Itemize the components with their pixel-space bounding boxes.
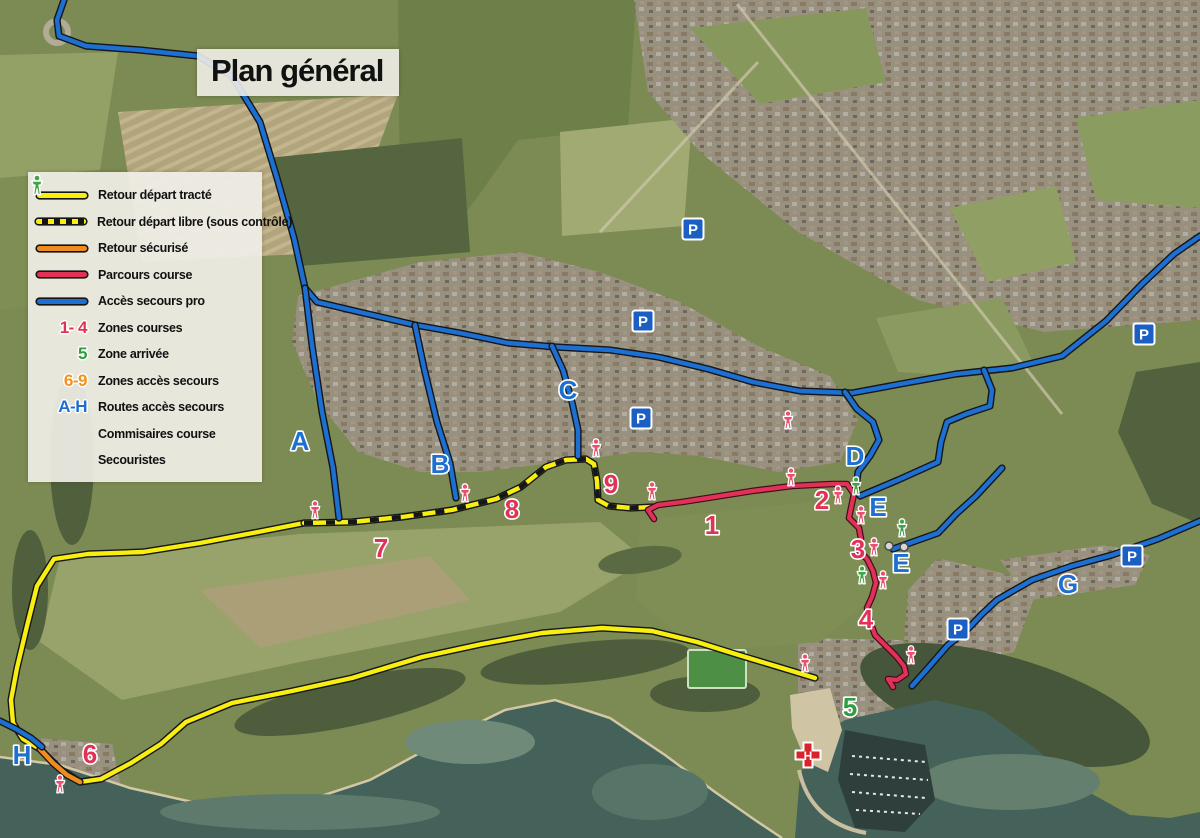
page-title: Plan général [211,53,383,89]
legend-symbol: A-H [58,397,87,417]
zone-number-marker: 1 [705,510,719,540]
secouriste-icon [897,519,907,537]
commissaire-icon [833,486,843,504]
map-title-box: Plan général [197,49,399,96]
legend-label: Secouristes [98,453,166,467]
legend-symbol: 1- 4 [60,318,87,338]
zone-number-marker: 9 [604,469,618,499]
legend-label: Zone arrivée [98,347,169,361]
legend-item-8: A-HRoutes accès secours [36,394,252,421]
legend-label: Retour départ libre (sous contrôle) [97,215,292,229]
legend-item-3: Parcours course [36,262,252,289]
legend-item-2: Retour sécurisé [36,235,252,262]
svg-text:H: H [804,749,813,763]
commissaire-icon [800,654,810,672]
commissaire-icon [647,482,657,500]
route-letter-marker: E [869,492,886,522]
parking-icon: P [948,619,969,640]
parking-icon: P [633,311,654,332]
route-letter-marker: G [1058,569,1078,599]
commissaire-icon [878,571,888,589]
legend-item-10: Secouristes [36,447,252,474]
legend-line-swatch-orange [37,246,87,251]
person-green-icon [28,172,46,198]
commissaire-icon [869,538,879,556]
legend-line-swatch-red [37,272,87,277]
route-letter-marker: C [559,375,578,405]
svg-text:P: P [953,622,963,639]
legend-symbol: 5 [78,344,87,364]
zone-number-marker: 5 [843,692,857,722]
legend-label: Zones courses [98,321,182,335]
legend-label: Retour départ tracté [98,188,211,202]
legend-item-0: Retour départ tracté [36,182,252,209]
person-green-icon [32,175,42,195]
legend-label: Routes accès secours [98,400,224,414]
route-letter-marker: A [291,426,310,456]
legend-line-swatch-yellow-dashed [36,219,86,224]
commissaire-icon [786,468,796,486]
route-letter-marker: B [431,449,450,479]
legend-item-4: Accès secours pro [36,288,252,315]
zone-number-marker: 8 [505,494,519,524]
parking-icon: P [1134,324,1155,345]
commissaire-icon [591,439,601,457]
zone-number-marker: 3 [851,534,865,564]
commissaire-icon [55,775,65,793]
parking-icon: P [683,219,704,240]
legend-item-5: 1- 4Zones courses [36,315,252,342]
svg-text:P: P [1139,327,1149,344]
legend-line-swatch-blue [37,299,87,304]
zone-number-marker: 7 [374,533,388,563]
svg-text:P: P [638,314,648,331]
commissaire-icon [783,411,793,429]
zone-number-marker: 4 [859,604,874,634]
zone-number-marker: 2 [815,485,829,515]
legend-item-7: 6-9Zones accès secours [36,368,252,395]
legend-label: Commisaires course [98,427,216,441]
route-letter-marker: D [846,441,865,471]
route-letter-marker: E [892,548,909,578]
zone-number-marker: 6 [83,739,97,769]
legend-label: Retour sécurisé [98,241,188,255]
map-canvas: PPPPPPABCDEEGH123456789H Plan général Re… [0,0,1200,838]
route-letter-marker: H [13,740,32,770]
svg-text:P: P [636,411,646,428]
secouriste-icon [851,477,861,495]
svg-text:P: P [688,222,698,239]
legend-label: Parcours course [98,268,192,282]
commissaire-icon [906,646,916,664]
legend: Retour départ tractéRetour départ libre … [28,172,262,482]
legend-label: Zones accès secours [98,374,219,388]
legend-item-9: Commisaires course [36,421,252,448]
parking-icon: P [631,408,652,429]
svg-text:P: P [1127,549,1137,566]
legend-label: Accès secours pro [98,294,205,308]
commissaire-icon [856,506,866,524]
commissaire-icon [460,484,470,502]
legend-symbol: 6-9 [64,371,87,391]
legend-item-6: 5Zone arrivée [36,341,252,368]
legend-item-1: Retour départ libre (sous contrôle) [36,209,252,236]
parking-icon: P [1122,546,1143,567]
commissaire-icon [310,501,320,519]
secouriste-icon [857,566,867,584]
